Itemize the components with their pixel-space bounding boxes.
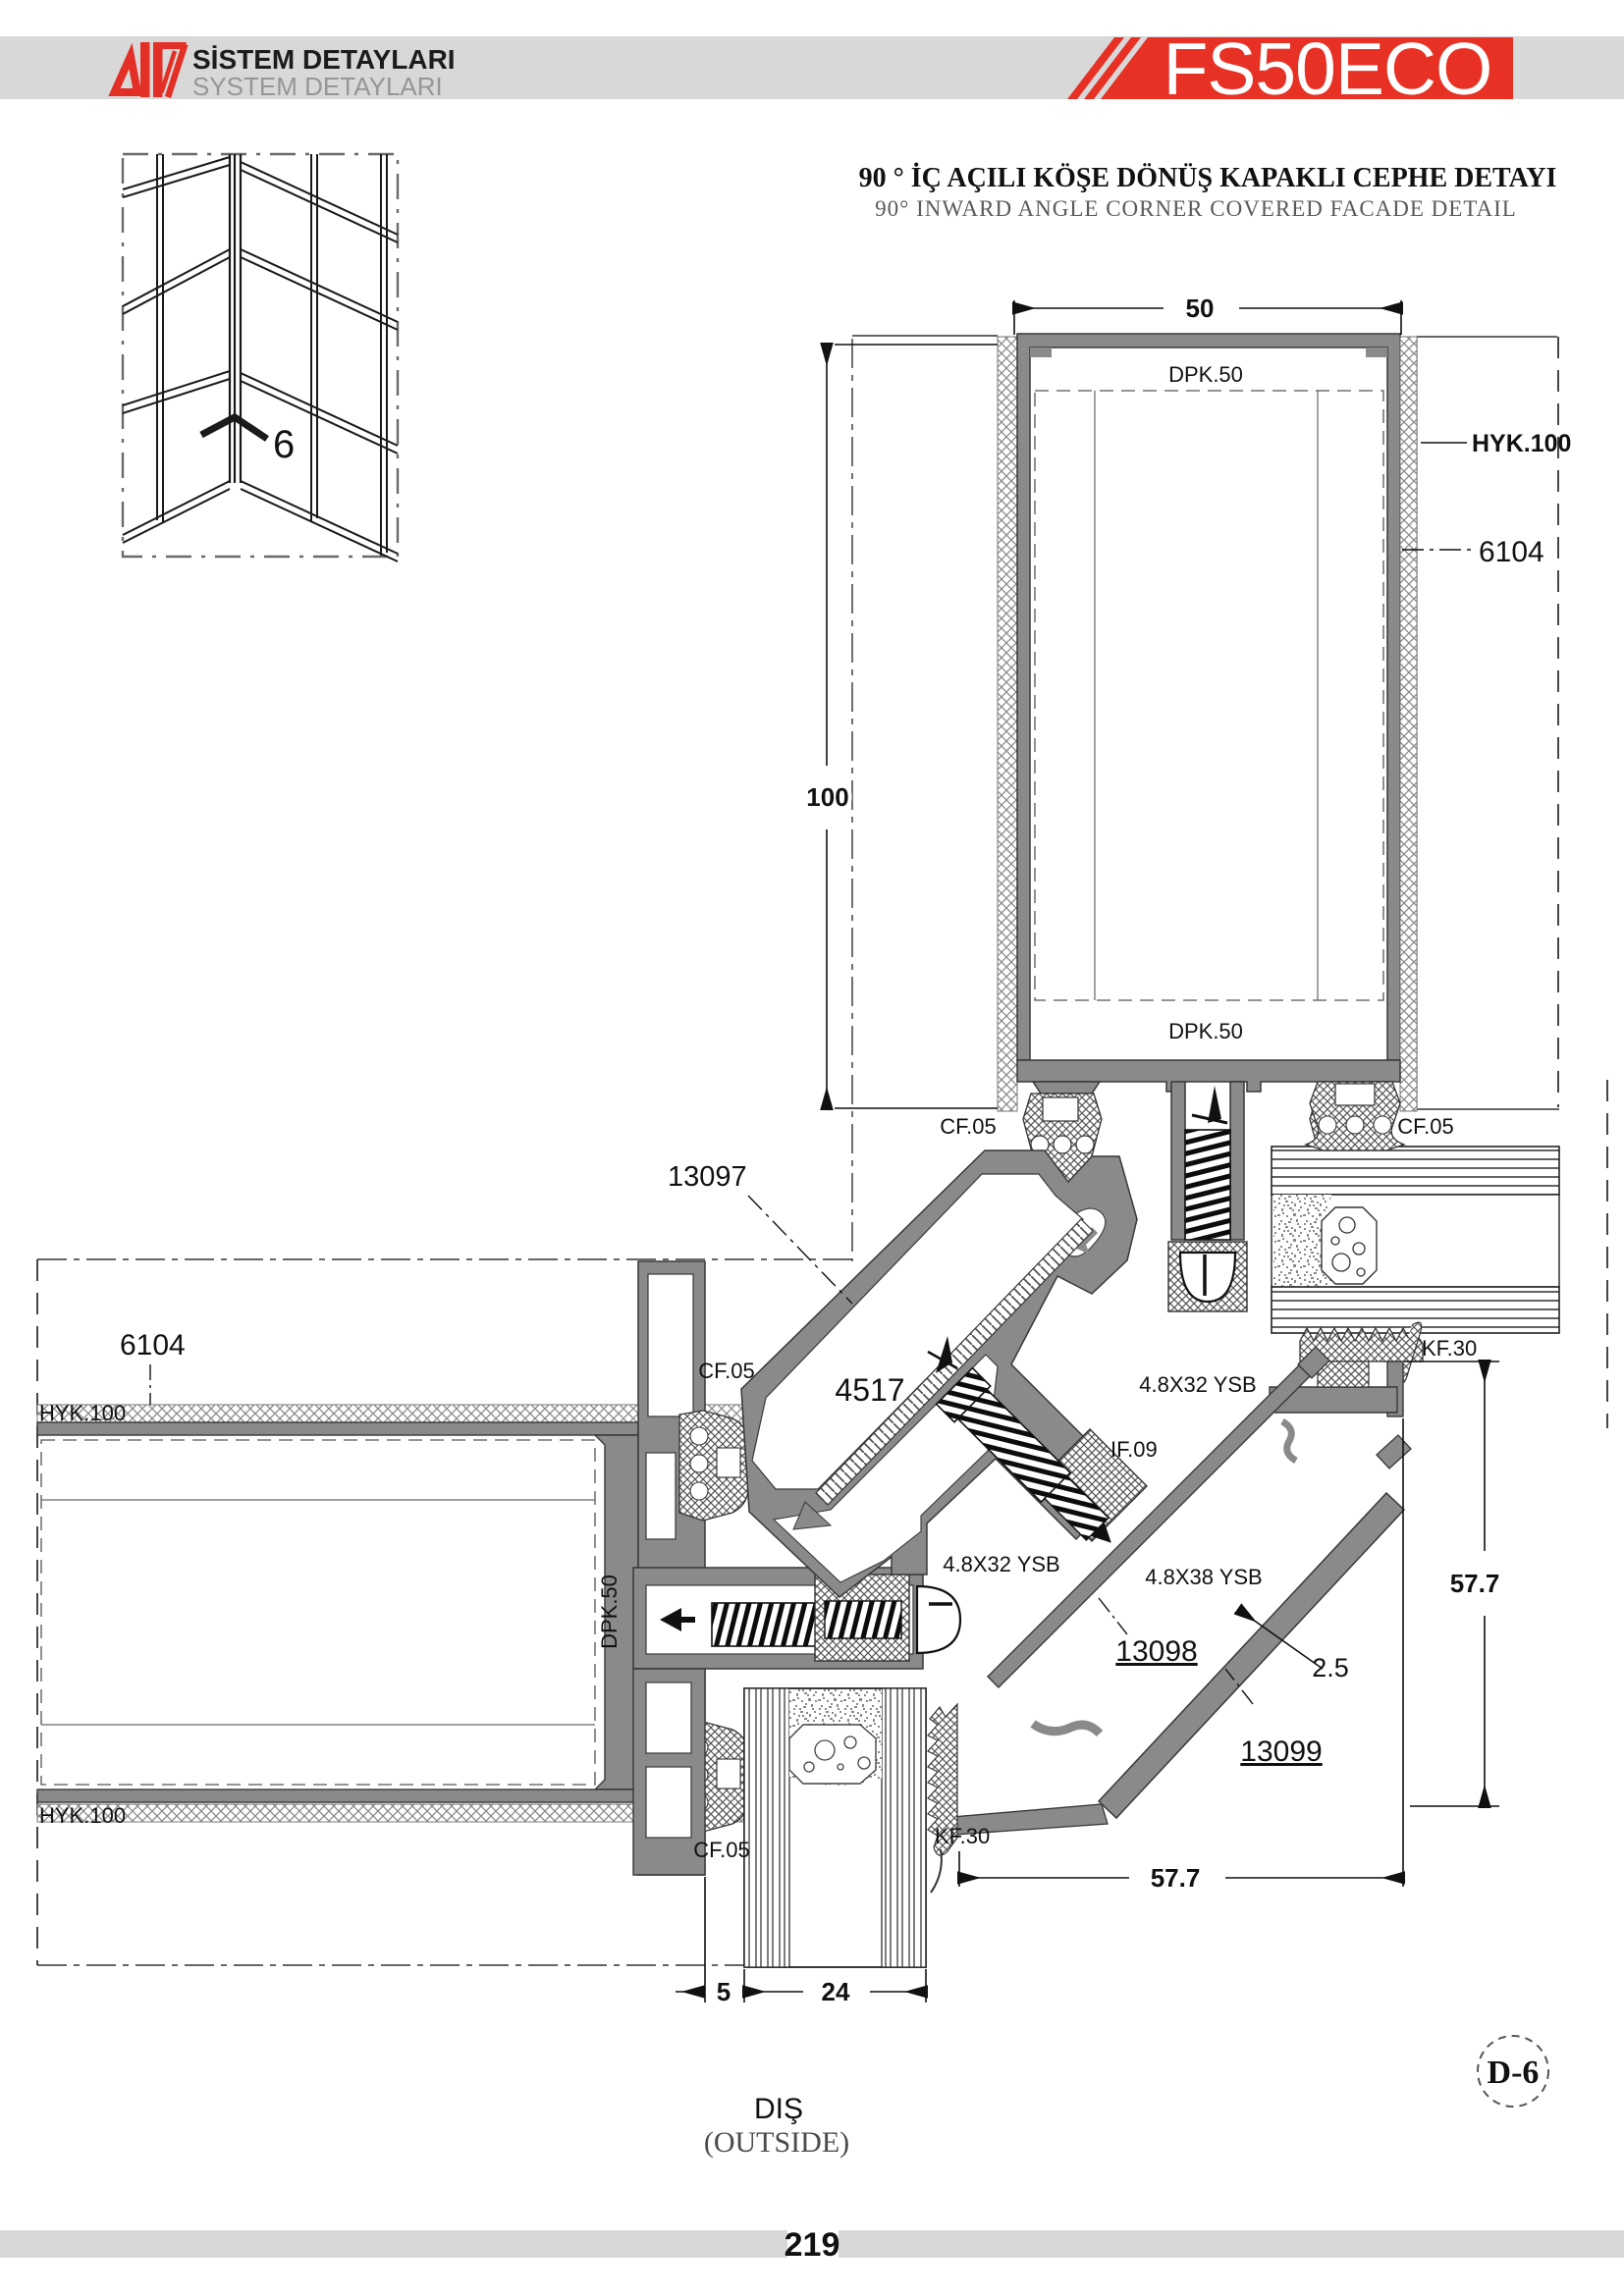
svg-text:HYK.100: HYK.100 <box>1472 430 1571 457</box>
svg-text:100: 100 <box>806 782 848 812</box>
svg-text:KF.30: KF.30 <box>1422 1336 1477 1361</box>
svg-text:219: 219 <box>785 2226 840 2264</box>
svg-text:50: 50 <box>1186 294 1215 323</box>
svg-text:CF.05: CF.05 <box>693 1838 749 1862</box>
svg-text:SYSTEM DETAYLARI: SYSTEM DETAYLARI <box>192 72 443 101</box>
svg-text:13097: 13097 <box>668 1161 747 1193</box>
svg-text:4.8X32 YSB: 4.8X32 YSB <box>1139 1372 1256 1397</box>
svg-text:13099: 13099 <box>1240 1735 1322 1768</box>
svg-text:6: 6 <box>273 423 295 466</box>
svg-text:D-6: D-6 <box>1488 2055 1540 2091</box>
svg-text:KF.30: KF.30 <box>935 1824 990 1848</box>
svg-text:90° INWARD ANGLE CORNER COVERE: 90° INWARD ANGLE CORNER COVERED FACADE D… <box>875 196 1517 221</box>
svg-text:DIŞ: DIŞ <box>754 2093 803 2125</box>
svg-text:4517: 4517 <box>835 1372 904 1408</box>
svg-text:57.7: 57.7 <box>1450 1569 1500 1598</box>
svg-text:DPK.50: DPK.50 <box>1168 1019 1243 1043</box>
svg-text:90 ° İÇ AÇILI KÖŞE DÖNÜŞ KAPAK: 90 ° İÇ AÇILI KÖŞE DÖNÜŞ KAPAKLI CEPHE D… <box>859 163 1557 193</box>
svg-text:(OUTSIDE): (OUTSIDE) <box>704 2126 849 2159</box>
svg-text:24: 24 <box>822 1977 850 2006</box>
svg-text:SİSTEM DETAYLARI: SİSTEM DETAYLARI <box>192 44 456 75</box>
svg-text:57.7: 57.7 <box>1151 1863 1201 1893</box>
svg-text:HYK.100: HYK.100 <box>39 1401 126 1425</box>
svg-text:CF.05: CF.05 <box>1397 1114 1453 1139</box>
svg-text:6104: 6104 <box>120 1329 186 1362</box>
svg-text:IF.09: IF.09 <box>1110 1437 1158 1462</box>
svg-text:6104: 6104 <box>1479 536 1544 568</box>
svg-text:2.5: 2.5 <box>1312 1653 1349 1682</box>
svg-text:13098: 13098 <box>1115 1635 1197 1668</box>
svg-text:CF.05: CF.05 <box>698 1359 754 1383</box>
svg-text:5: 5 <box>717 1977 731 2006</box>
svg-text:DPK.50: DPK.50 <box>597 1575 622 1649</box>
svg-text:HYK.100: HYK.100 <box>39 1803 126 1828</box>
svg-text:4.8X38 YSB: 4.8X38 YSB <box>1145 1565 1262 1589</box>
svg-text:DPK.50: DPK.50 <box>1168 362 1243 387</box>
svg-text:4.8X32 YSB: 4.8X32 YSB <box>943 1552 1059 1576</box>
svg-text:CF.05: CF.05 <box>940 1114 996 1139</box>
svg-text:FS50ECO: FS50ECO <box>1164 27 1492 110</box>
